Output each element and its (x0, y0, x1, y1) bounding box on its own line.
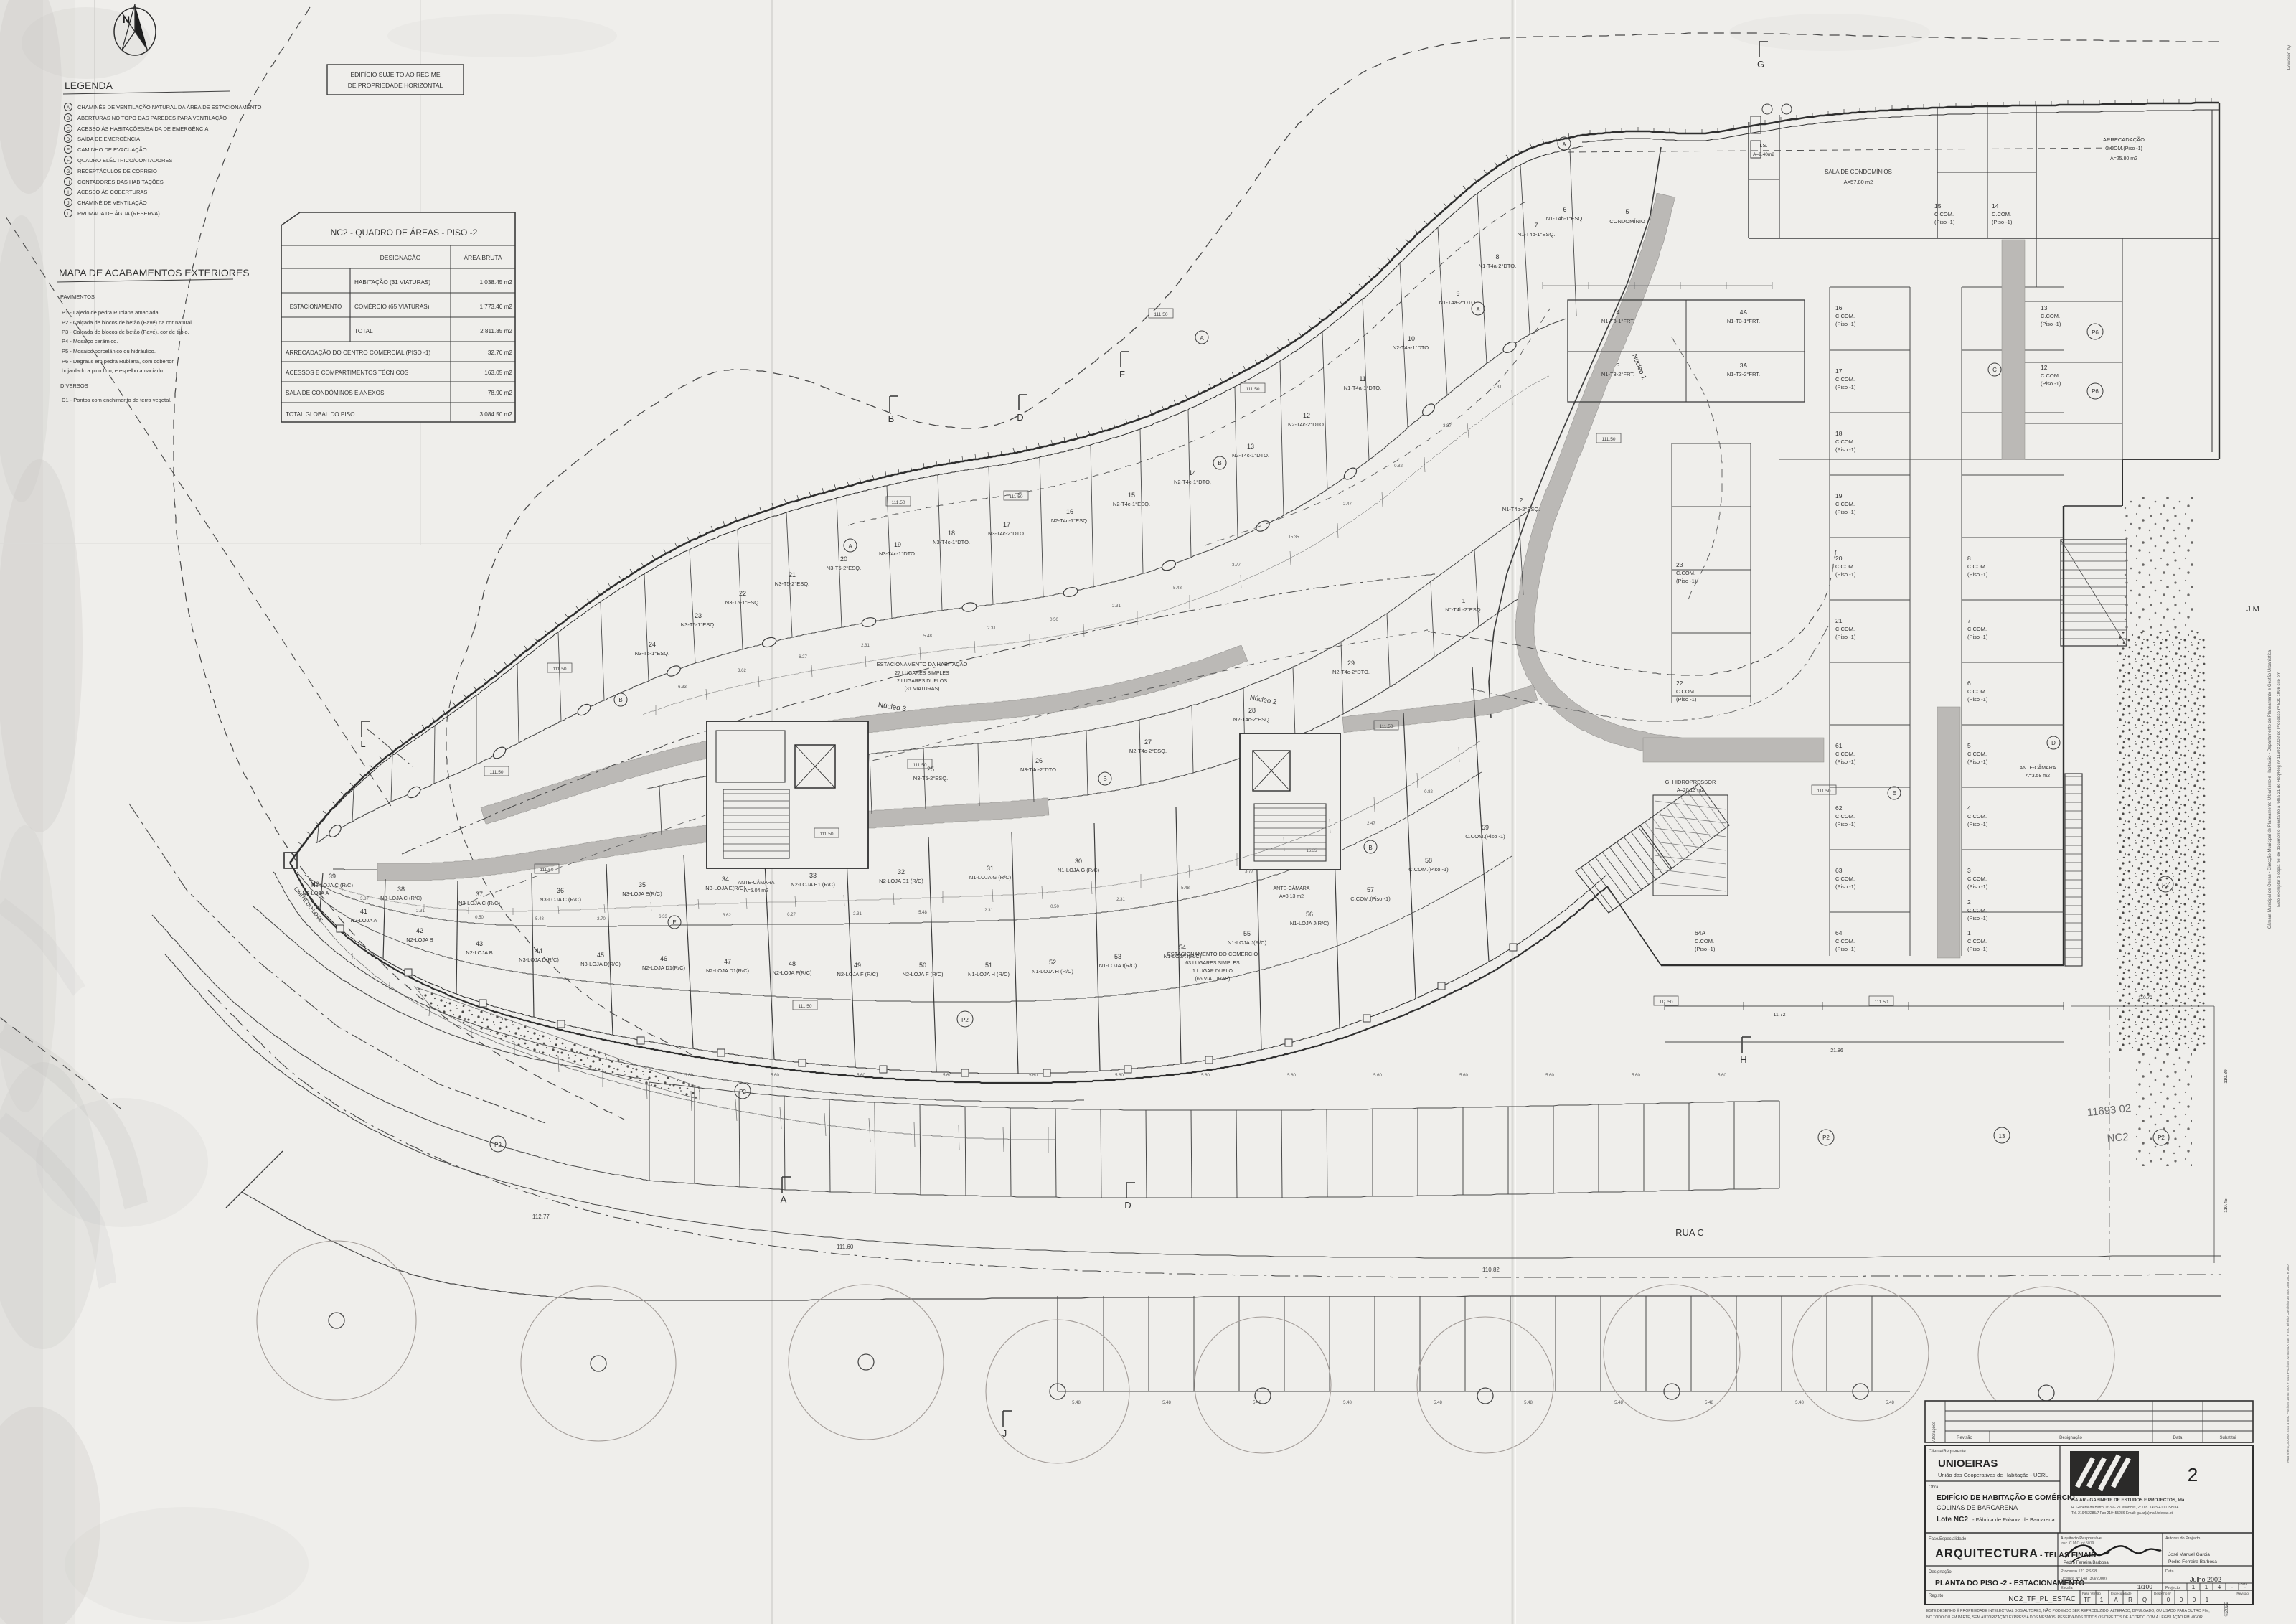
svg-text:C.COM.: C.COM. (1676, 688, 1695, 695)
svg-text:A=5.04 m2: A=5.04 m2 (744, 888, 768, 893)
svg-text:N2-T4c-2°ESQ.: N2-T4c-2°ESQ. (1233, 716, 1271, 723)
svg-text:A=8.13 m2: A=8.13 m2 (1279, 894, 1304, 899)
svg-text:B: B (1103, 776, 1106, 782)
svg-text:CONDOMÍNIO: CONDOMÍNIO (1609, 218, 1645, 225)
svg-text:N2-T4c-1°ESQ.: N2-T4c-1°ESQ. (1051, 517, 1088, 524)
svg-text:2.70: 2.70 (597, 917, 606, 921)
svg-text:41: 41 (360, 908, 367, 915)
svg-text:N3-T5-2°ESQ.: N3-T5-2°ESQ. (913, 775, 948, 782)
svg-text:GA.AR - GABINETE DE ESTUDOS E: GA.AR - GABINETE DE ESTUDOS E PROJECTOS,… (2071, 1498, 2185, 1503)
svg-text:ARQUITECTURA: ARQUITECTURA (1935, 1547, 2038, 1560)
svg-text:5.48: 5.48 (1614, 1401, 1623, 1405)
svg-text:N1-LOJA J(R/C): N1-LOJA J(R/C) (1290, 920, 1330, 926)
svg-text:21: 21 (789, 571, 796, 578)
svg-text:3.77: 3.77 (1245, 870, 1253, 874)
svg-text:6.33: 6.33 (678, 685, 687, 690)
svg-text:(Piso -1): (Piso -1) (1835, 384, 1856, 390)
svg-text:CONTADORES DAS HABITAÇÕES: CONTADORES DAS HABITAÇÕES (77, 179, 164, 185)
svg-text:(Piso -1): (Piso -1) (1967, 571, 1988, 578)
svg-text:Julho 2002: Julho 2002 (2190, 1576, 2221, 1583)
svg-text:N2-LOJA A: N2-LOJA A (302, 890, 329, 896)
svg-text:8: 8 (1495, 253, 1499, 261)
svg-text:56: 56 (1306, 911, 1313, 918)
svg-text:42: 42 (416, 927, 423, 934)
svg-text:1: 1 (2100, 1597, 2104, 1603)
svg-text:Especialidade: Especialidade (2111, 1592, 2132, 1595)
svg-text:N3-LOJA E(R/C): N3-LOJA E(R/C) (622, 891, 662, 897)
svg-text:1 038.45 m2: 1 038.45 m2 (479, 279, 512, 286)
svg-text:R. General da Barro, Lt 39 - 2: R. General da Barro, Lt 39 - 2 Cavonces,… (2071, 1506, 2179, 1510)
svg-text:110.70: 110.70 (2138, 995, 2152, 1000)
svg-text:3 084.50 m2: 3 084.50 m2 (479, 411, 512, 418)
svg-text:N2-T4c-1°ESQ.: N2-T4c-1°ESQ. (1113, 501, 1150, 507)
svg-text:D: D (1124, 1200, 1131, 1211)
svg-text:5.60: 5.60 (684, 1074, 693, 1078)
svg-text:N1-LOJA G (R/C): N1-LOJA G (R/C) (1058, 867, 1100, 873)
svg-text:C.COM.: C.COM. (1835, 563, 1855, 570)
svg-text:Pedro Ferreira Barbosa: Pedro Ferreira Barbosa (2168, 1559, 2217, 1564)
svg-text:A: A (67, 105, 70, 111)
svg-text:TOTAL GLOBAL DO PISO: TOTAL GLOBAL DO PISO (286, 411, 354, 418)
svg-text:Processo 121 PS/98: Processo 121 PS/98 (2061, 1569, 2097, 1574)
svg-text:ARRECADAÇÃO DO CENTRO COMERCIA: ARRECADAÇÃO DO CENTRO COMERCIAL (PISO -1… (286, 349, 430, 356)
svg-text:E: E (1892, 790, 1896, 797)
svg-text:Fase/Especialidade: Fase/Especialidade (1929, 1537, 1967, 1541)
svg-text:C.COM.: C.COM. (1835, 751, 1855, 757)
svg-text:N2-T4c-2°ESQ.: N2-T4c-2°ESQ. (1129, 748, 1167, 754)
svg-text:59: 59 (1482, 824, 1489, 831)
svg-text:111.50: 111.50 (1602, 437, 1616, 442)
svg-text:Este exemplar é cópia fiel do: Este exemplar é cópia fiel do documento … (2277, 672, 2282, 907)
svg-text:111.50: 111.50 (913, 763, 927, 768)
svg-text:N3-LOJA C (R/C): N3-LOJA C (R/C) (540, 896, 581, 903)
svg-text:17: 17 (1835, 367, 1843, 375)
svg-text:2.31: 2.31 (1116, 898, 1125, 902)
svg-text:Autores do Projecto: Autores do Projecto (2165, 1536, 2200, 1541)
svg-text:G: G (1757, 59, 1764, 70)
svg-text:N1-T3-1°FRT.: N1-T3-1°FRT. (1601, 318, 1634, 324)
svg-text:27 LUGARES SIMPLES: 27 LUGARES SIMPLES (895, 671, 949, 676)
svg-text:Pedro Ferreira Barbosa: Pedro Ferreira Barbosa (2064, 1561, 2109, 1565)
svg-text:111.50: 111.50 (553, 667, 567, 672)
svg-text:N2-LOJA B: N2-LOJA B (466, 949, 493, 956)
svg-text:12: 12 (2041, 364, 2048, 371)
svg-text:14: 14 (1992, 202, 1999, 210)
svg-text:15: 15 (1128, 492, 1135, 499)
svg-text:5.60: 5.60 (857, 1074, 865, 1078)
svg-text:4: 4 (1967, 804, 1971, 812)
svg-text:7: 7 (1534, 222, 1538, 229)
svg-text:A=25.80 m2: A=25.80 m2 (2110, 156, 2137, 161)
svg-text:14: 14 (1189, 469, 1196, 477)
svg-text:110.45: 110.45 (2224, 1198, 2229, 1213)
svg-text:Alterações: Alterações (1932, 1422, 1937, 1442)
svg-text:C.COM.: C.COM. (1967, 938, 1987, 944)
svg-text:E: E (67, 148, 70, 153)
svg-text:0.82: 0.82 (1394, 464, 1403, 469)
svg-text:30: 30 (1075, 858, 1082, 865)
svg-text:ESTACIONAMENTO DA HABITAÇÃO: ESTACIONAMENTO DA HABITAÇÃO (877, 661, 968, 667)
svg-text:N3-LOJA D(R/C): N3-LOJA D(R/C) (580, 961, 621, 967)
svg-text:63 LUGARES SIMPLES: 63 LUGARES SIMPLES (1185, 961, 1240, 966)
svg-text:A: A (1562, 141, 1566, 148)
svg-text:N3-LOJA D(R/C): N3-LOJA D(R/C) (519, 957, 559, 963)
svg-text:5.60: 5.60 (943, 1074, 951, 1078)
svg-text:1: 1 (1462, 597, 1466, 604)
svg-text:111.60: 111.60 (837, 1244, 854, 1250)
svg-text:(Piso -1): (Piso -1) (1992, 219, 2013, 225)
svg-text:(Piso -1): (Piso -1) (1695, 946, 1716, 952)
svg-text:A: A (848, 543, 852, 550)
svg-text:2.31: 2.31 (853, 912, 862, 916)
svg-text:21.86: 21.86 (1830, 1048, 1843, 1053)
svg-text:C.COM.: C.COM. (1835, 376, 1855, 382)
svg-text:D1 - Pontos com enchimento de: D1 - Pontos com enchimento de terra vege… (62, 397, 171, 403)
svg-text:1: 1 (2206, 1597, 2209, 1603)
svg-text:(Piso -1): (Piso -1) (1835, 571, 1856, 578)
svg-text:NO TODO OU EM PARTE, SEM AUTOR: NO TODO OU EM PARTE, SEM AUTORIZAÇÃO EXP… (1926, 1615, 2203, 1620)
svg-text:2 LUGARES DUPLOS: 2 LUGARES DUPLOS (897, 679, 947, 684)
svg-text:A: A (1200, 335, 1204, 342)
svg-text:13: 13 (1247, 443, 1254, 450)
svg-text:31: 31 (987, 865, 994, 872)
svg-text:25: 25 (927, 766, 934, 773)
svg-text:57: 57 (1367, 886, 1374, 893)
svg-text:C.COM.(Piso -1): C.COM.(Piso -1) (2105, 146, 2142, 151)
svg-text:62: 62 (1835, 804, 1843, 812)
svg-text:112.77: 112.77 (532, 1214, 550, 1220)
svg-text:N1-T4a-1°DTO.: N1-T4a-1°DTO. (1344, 385, 1381, 391)
svg-text:P2: P2 (2158, 1135, 2165, 1141)
svg-text:C.COM.: C.COM. (2041, 313, 2060, 319)
svg-text:20: 20 (1835, 555, 1843, 562)
svg-text:163.05 m2: 163.05 m2 (484, 370, 512, 376)
svg-text:54: 54 (1179, 944, 1186, 951)
svg-text:11: 11 (1359, 375, 1365, 382)
svg-text:N3-T4c-2°DTO.: N3-T4c-2°DTO. (1020, 766, 1058, 773)
svg-text:38: 38 (397, 886, 405, 893)
svg-text:ACESSO ÀS HABITAÇÕES/SAÍDA DE: ACESSO ÀS HABITAÇÕES/SAÍDA DE EMERGÊNCIA (77, 126, 208, 132)
svg-text:37: 37 (476, 891, 483, 898)
svg-text:5.60: 5.60 (1029, 1074, 1038, 1078)
svg-text:78.90 m2: 78.90 m2 (488, 390, 513, 396)
svg-text:(Piso -1): (Piso -1) (1835, 634, 1856, 640)
svg-text:C.COM.: C.COM. (1695, 938, 1714, 944)
svg-text:N1-LOJA I(R/C): N1-LOJA I(R/C) (1099, 962, 1137, 969)
svg-text:José Manuel Garcia: José Manuel Garcia (2168, 1552, 2210, 1557)
svg-text:A: A (781, 1194, 787, 1205)
svg-text:C.COM.: C.COM. (1835, 438, 1855, 445)
svg-text:LEGENDA: LEGENDA (65, 80, 113, 91)
svg-text:18: 18 (1835, 430, 1843, 437)
svg-text:35: 35 (639, 881, 646, 888)
svg-text:5.48: 5.48 (535, 917, 544, 921)
svg-text:A=3.58 m2: A=3.58 m2 (2026, 774, 2050, 779)
svg-text:111.50: 111.50 (1380, 724, 1393, 729)
svg-text:4: 4 (2218, 1584, 2221, 1590)
svg-text:11.72: 11.72 (1774, 1013, 1786, 1018)
svg-text:N3-T4c-1°DTO.: N3-T4c-1°DTO. (879, 550, 916, 557)
svg-text:SALA DE CONDOMÍNIOS: SALA DE CONDOMÍNIOS (1825, 169, 1892, 175)
svg-text:23: 23 (695, 612, 702, 619)
svg-text:(Piso -1): (Piso -1) (2041, 380, 2061, 387)
svg-text:(Piso -1): (Piso -1) (1835, 446, 1856, 453)
svg-text:3.87: 3.87 (1443, 424, 1452, 428)
svg-text:5.48: 5.48 (1343, 1401, 1352, 1405)
svg-text:L: L (360, 738, 365, 749)
svg-text:Insc. C.M.O. nº 5019: Insc. C.M.O. nº 5019 (2061, 1541, 2094, 1546)
svg-text:DE PROPRIEDADE HORIZONTAL: DE PROPRIEDADE HORIZONTAL (348, 82, 443, 89)
svg-text:4A: 4A (1740, 309, 1748, 316)
svg-text:53: 53 (1114, 953, 1121, 960)
svg-text:64: 64 (1835, 929, 1843, 937)
svg-text:P5 - Mosaico porcelânico ou hi: P5 - Mosaico porcelânico ou hidráulico. (62, 348, 156, 355)
svg-text:5.60: 5.60 (1718, 1074, 1726, 1078)
svg-text:N1-T4b-2°ESQ.: N1-T4b-2°ESQ. (1502, 506, 1540, 512)
svg-text:N2-T4c-1°DTO.: N2-T4c-1°DTO. (1174, 479, 1211, 485)
svg-text:N°-T4b-2°ESQ.: N°-T4b-2°ESQ. (1445, 606, 1482, 613)
svg-text:PRUMADA DE ÁGUA (RESERVA): PRUMADA DE ÁGUA (RESERVA) (77, 210, 160, 217)
svg-text:C.COM.(Piso -1): C.COM.(Piso -1) (1408, 866, 1449, 873)
svg-text:C.COM.: C.COM. (1835, 938, 1855, 944)
svg-text:-: - (2231, 1584, 2234, 1590)
svg-text:J: J (1002, 1428, 1007, 1439)
svg-text:P6: P6 (2092, 388, 2099, 395)
svg-text:CAMINHO DE EVACUAÇÃO: CAMINHO DE EVACUAÇÃO (77, 146, 147, 153)
svg-text:6.27: 6.27 (787, 913, 796, 917)
svg-text:DESIGNAÇÃO: DESIGNAÇÃO (380, 254, 421, 261)
svg-text:P2: P2 (494, 1142, 502, 1148)
svg-text:19: 19 (1835, 492, 1843, 499)
svg-text:15.35: 15.35 (1288, 535, 1299, 540)
svg-text:39: 39 (329, 873, 336, 880)
svg-text:15: 15 (1934, 202, 1942, 210)
svg-text:RUA C: RUA C (1675, 1227, 1704, 1238)
svg-text:48: 48 (789, 960, 796, 967)
svg-text:16: 16 (1835, 304, 1843, 311)
svg-text:5.48: 5.48 (1434, 1401, 1442, 1405)
svg-text:111.50: 111.50 (892, 500, 905, 505)
svg-text:Revisão: Revisão (2236, 1592, 2249, 1595)
svg-text:ABERTURAS NO TOPO DAS PAREDES: ABERTURAS NO TOPO DAS PAREDES PARA VENTI… (77, 115, 227, 121)
svg-text:Obra: Obra (1929, 1485, 1939, 1490)
svg-text:COMÉRCIO (65 VIATURAS): COMÉRCIO (65 VIATURAS) (354, 303, 430, 310)
svg-text:27: 27 (1144, 738, 1152, 746)
svg-text:C.COM.: C.COM. (1967, 688, 1987, 695)
svg-text:Revisão: Revisão (1957, 1436, 1972, 1440)
svg-text:(Piso -1): (Piso -1) (2041, 321, 2061, 327)
svg-text:13: 13 (2041, 304, 2048, 311)
svg-text:G. HIDROPRESSOR: G. HIDROPRESSOR (1665, 779, 1716, 785)
svg-text:0.50: 0.50 (1050, 905, 1059, 909)
svg-text:44: 44 (535, 947, 542, 954)
svg-text:2: 2 (1520, 497, 1523, 504)
svg-text:P1 - Lajedo de pedra Rubiana a: P1 - Lajedo de pedra Rubiana amaciada. (62, 309, 160, 316)
svg-text:N3-LOJA C (R/C): N3-LOJA C (R/C) (458, 900, 500, 906)
svg-text:28: 28 (1248, 707, 1256, 714)
svg-text:A=9.40m2: A=9.40m2 (1753, 152, 1774, 157)
svg-text:Escala: Escala (2061, 1586, 2073, 1590)
svg-text:C.COM.: C.COM. (1967, 907, 1987, 914)
svg-text:(Piso -1): (Piso -1) (1835, 509, 1856, 515)
svg-text:N: N (123, 14, 130, 25)
svg-text:7: 7 (1967, 617, 1971, 624)
svg-text:6: 6 (1563, 206, 1566, 213)
svg-text:C.COM.: C.COM. (1967, 876, 1987, 882)
svg-text:(Piso -1): (Piso -1) (1676, 696, 1697, 703)
svg-text:(Piso -1): (Piso -1) (1967, 634, 1988, 640)
svg-text:C: C (1992, 367, 1997, 373)
svg-text:P2: P2 (2162, 882, 2169, 888)
svg-text:C.COM.: C.COM. (1835, 501, 1855, 507)
svg-text:C.COM.: C.COM. (2041, 372, 2060, 379)
svg-text:5.48: 5.48 (1072, 1401, 1081, 1405)
svg-text:F: F (1119, 369, 1125, 380)
svg-text:24: 24 (649, 641, 656, 648)
svg-text:20: 20 (840, 555, 847, 563)
svg-text:110.82: 110.82 (1482, 1267, 1500, 1273)
svg-text:111.50: 111.50 (820, 832, 834, 837)
svg-text:29: 29 (1347, 660, 1355, 667)
svg-text:1: 1 (2205, 1584, 2208, 1590)
svg-text:R: R (2128, 1597, 2132, 1603)
svg-text:TOTAL: TOTAL (354, 328, 373, 334)
svg-text:55: 55 (1243, 930, 1251, 937)
svg-text:C.COM.: C.COM. (1835, 626, 1855, 632)
svg-text:J: J (67, 201, 69, 206)
svg-text:6.27: 6.27 (799, 655, 807, 660)
svg-text:C.COM.: C.COM. (1967, 813, 1987, 820)
svg-text:(Piso -1): (Piso -1) (1835, 821, 1856, 827)
svg-text:(Piso -1): (Piso -1) (1967, 821, 1988, 827)
svg-text:4: 4 (1617, 309, 1620, 316)
svg-text:©2022: ©2022 (2224, 1602, 2229, 1617)
svg-text:J M: J M (2246, 605, 2259, 614)
svg-text:RECEPTÁCULOS DE CORREIO: RECEPTÁCULOS DE CORREIO (77, 168, 157, 174)
svg-text:5.48: 5.48 (1795, 1401, 1804, 1405)
svg-text:1: 1 (2192, 1584, 2196, 1590)
svg-text:19: 19 (894, 541, 901, 548)
svg-text:5.48: 5.48 (918, 911, 927, 915)
svg-text:MAPA DE ACABAMENTOS EXTERIORES: MAPA DE ACABAMENTOS EXTERIORES (59, 267, 250, 278)
svg-text:G: G (66, 169, 70, 174)
svg-text:12: 12 (1303, 412, 1310, 419)
svg-text:23: 23 (1676, 561, 1683, 568)
svg-text:A=20.13 m2: A=20.13 m2 (1677, 788, 1704, 793)
svg-text:TF: TF (2084, 1597, 2091, 1603)
svg-text:A=57.80 m2: A=57.80 m2 (1844, 179, 1873, 185)
svg-text:N2-LOJA F (R/C): N2-LOJA F (R/C) (837, 971, 878, 977)
svg-text:N3-T5-1°ESQ.: N3-T5-1°ESQ. (725, 599, 760, 606)
svg-text:B: B (618, 697, 622, 703)
svg-text:ANTE-CÂMARA: ANTE-CÂMARA (1274, 885, 1310, 891)
svg-text:5: 5 (1625, 208, 1629, 215)
svg-text:111.50: 111.50 (1154, 312, 1168, 317)
svg-text:8: 8 (1967, 555, 1971, 562)
svg-text:Licença Nº 148 (3/3/2000): Licença Nº 148 (3/3/2000) (2061, 1576, 2107, 1581)
svg-text:C.COM.: C.COM. (1835, 876, 1855, 882)
svg-text:32.70 m2: 32.70 m2 (488, 349, 513, 356)
svg-text:0: 0 (2167, 1597, 2170, 1603)
svg-text:D: D (2051, 740, 2056, 746)
svg-text:N3-T4c-1°DTO.: N3-T4c-1°DTO. (933, 539, 970, 545)
svg-text:34: 34 (722, 876, 729, 883)
svg-text:H: H (67, 180, 70, 185)
svg-text:Data: Data (2173, 1436, 2183, 1440)
svg-text:2: 2 (1967, 898, 1971, 906)
svg-text:HABITAÇÃO (31 VIATURAS): HABITAÇÃO (31 VIATURAS) (354, 278, 430, 286)
svg-text:C.COM.: C.COM. (1992, 211, 2011, 217)
svg-text:16: 16 (1066, 508, 1073, 515)
svg-text:0: 0 (2180, 1597, 2183, 1603)
svg-text:49: 49 (854, 962, 861, 969)
svg-text:Designação: Designação (2059, 1436, 2082, 1440)
svg-text:N1-LOJA H (R/C): N1-LOJA H (R/C) (1032, 968, 1073, 975)
svg-text:N1-T3-2°FRT.: N1-T3-2°FRT. (1601, 371, 1634, 377)
svg-text:17: 17 (1003, 521, 1010, 528)
svg-text:5.48: 5.48 (1181, 886, 1190, 891)
svg-text:D: D (67, 137, 70, 142)
svg-text:P2: P2 (961, 1017, 969, 1023)
svg-text:(Piso -1): (Piso -1) (1967, 883, 1988, 890)
svg-text:5.60: 5.60 (1287, 1074, 1296, 1078)
svg-text:P2: P2 (1822, 1135, 1830, 1141)
svg-text:P6: P6 (2092, 329, 2099, 336)
svg-text:Data: Data (2165, 1569, 2175, 1574)
svg-text:NC2: NC2 (2107, 1131, 2129, 1145)
svg-text:A: A (2114, 1597, 2118, 1603)
svg-text:64A: 64A (1695, 929, 1705, 937)
svg-text:22: 22 (1676, 680, 1683, 687)
svg-text:D: D (1017, 412, 1023, 423)
svg-text:N3-T4c-2°DTO.: N3-T4c-2°DTO. (988, 530, 1025, 537)
svg-text:Registo: Registo (1929, 1594, 1944, 1598)
svg-text:(65 VIATURAS): (65 VIATURAS) (1195, 977, 1231, 982)
svg-text:N1-LOJA H (R/C): N1-LOJA H (R/C) (968, 971, 1010, 977)
svg-text:(Piso -1): (Piso -1) (1835, 946, 1856, 952)
svg-text:Folha: Folha (2239, 1582, 2247, 1587)
svg-text:N1-LOJA J(R/C): N1-LOJA J(R/C) (1228, 939, 1267, 946)
svg-text:5.60: 5.60 (771, 1074, 779, 1078)
svg-text:5.48: 5.48 (1162, 1401, 1171, 1405)
svg-text:ESTACIONAMENTO: ESTACIONAMENTO (290, 304, 342, 310)
svg-text:Desenho nº: Desenho nº (2154, 1592, 2171, 1595)
svg-text:26: 26 (1035, 757, 1043, 764)
svg-text:ACESSOS E COMPARTIMENTOS TÉCNI: ACESSOS E COMPARTIMENTOS TÉCNICOS (286, 369, 409, 376)
svg-text:União das Cooperativas de Habi: União das Cooperativas de Habitação - UC… (1938, 1472, 2048, 1478)
svg-text:Lote NC2: Lote NC2 (1937, 1516, 1968, 1524)
svg-text:3: 3 (1617, 362, 1620, 369)
svg-text:58: 58 (1425, 857, 1432, 864)
svg-text:UNIOEIRAS: UNIOEIRAS (1938, 1458, 1998, 1470)
svg-text:N1-T3-1°FRT.: N1-T3-1°FRT. (1727, 318, 1760, 324)
svg-text:3.87: 3.87 (360, 897, 369, 901)
svg-text:Q: Q (2142, 1597, 2147, 1603)
svg-text:111.50: 111.50 (1875, 1000, 1888, 1005)
svg-text:51: 51 (985, 962, 992, 969)
svg-text:5.48: 5.48 (1886, 1401, 1894, 1405)
svg-text:SALA DE CONDÓMINOS E ANEXOS: SALA DE CONDÓMINOS E ANEXOS (286, 389, 385, 396)
svg-text:N1-T3-2°FRT.: N1-T3-2°FRT. (1727, 371, 1760, 377)
svg-text:9: 9 (1456, 290, 1459, 297)
svg-text:(Piso -1): (Piso -1) (1967, 759, 1988, 765)
svg-text:N2-T4c-2°DTO.: N2-T4c-2°DTO. (1288, 421, 1325, 428)
svg-text:Cliente/Requerente: Cliente/Requerente (1929, 1450, 1966, 1454)
svg-text:N2-LOJA B: N2-LOJA B (406, 937, 433, 943)
svg-text:P3 - Calçada de blocos de betã: P3 - Calçada de blocos de betão (Pavé), … (62, 329, 189, 335)
svg-text:32: 32 (898, 868, 905, 876)
svg-text:2 811.85 m2: 2 811.85 m2 (480, 328, 512, 334)
